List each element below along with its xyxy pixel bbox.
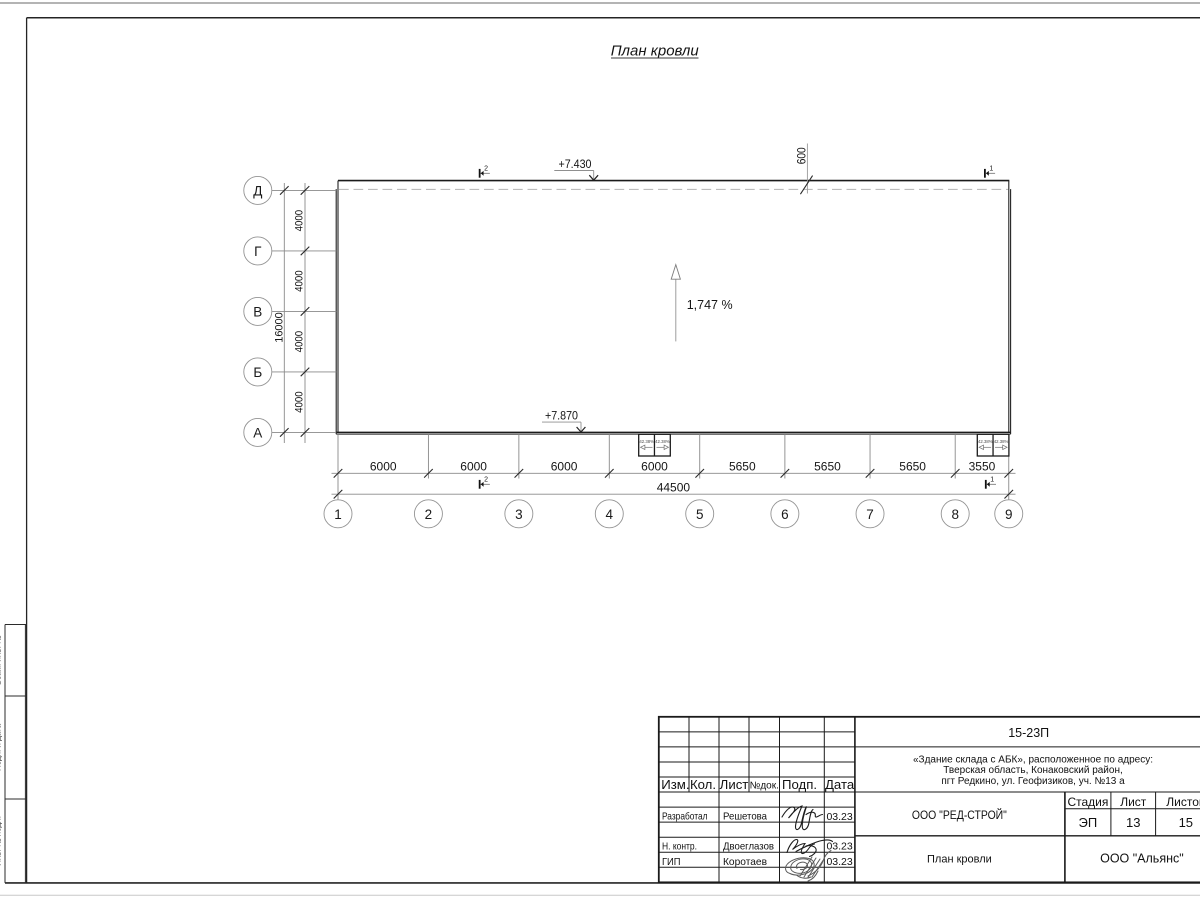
svg-text:5650: 5650 — [814, 459, 841, 473]
svg-text:Двоеглазов: Двоеглазов — [723, 841, 774, 853]
svg-text:15-23П: 15-23П — [1008, 726, 1049, 740]
svg-text:6000: 6000 — [641, 459, 668, 473]
svg-text:8: 8 — [951, 507, 959, 522]
svg-text:600: 600 — [797, 147, 809, 164]
svg-text:Решетова: Решетова — [723, 810, 767, 822]
svg-text:ЭП: ЭП — [1079, 815, 1098, 830]
svg-text:Лист: Лист — [720, 777, 749, 792]
svg-text:ООО "Альянс": ООО "Альянс" — [1100, 851, 1184, 865]
svg-text:4000: 4000 — [294, 391, 306, 413]
svg-text:4000: 4000 — [294, 331, 306, 353]
svg-text:Кол.: Кол. — [690, 777, 716, 792]
svg-text:Б: Б — [253, 365, 262, 380]
svg-text:42.38%: 42.38% — [639, 439, 654, 444]
svg-text:13: 13 — [1126, 815, 1140, 830]
svg-text:Листов: Листов — [1166, 795, 1200, 809]
svg-text:6: 6 — [781, 507, 789, 522]
svg-text:15: 15 — [1179, 815, 1193, 830]
svg-text:5650: 5650 — [899, 459, 926, 473]
svg-text:4000: 4000 — [294, 210, 306, 232]
svg-text:ГИП: ГИП — [662, 856, 681, 868]
svg-text:Н. контр.: Н. контр. — [662, 841, 697, 853]
svg-text:№док.: №док. — [750, 780, 779, 791]
svg-text:9: 9 — [1005, 507, 1013, 522]
svg-text:3550: 3550 — [969, 459, 996, 473]
svg-text:6000: 6000 — [551, 459, 578, 473]
svg-text:1: 1 — [990, 477, 994, 484]
svg-text:Лист: Лист — [1120, 795, 1147, 809]
svg-text:1,747 %: 1,747 % — [687, 298, 733, 312]
svg-text:Дата: Дата — [825, 777, 855, 792]
svg-text:5650: 5650 — [729, 459, 756, 473]
svg-text:Д: Д — [253, 183, 262, 198]
svg-text:План кровли: План кровли — [927, 854, 992, 866]
svg-text:03.23: 03.23 — [826, 856, 852, 868]
svg-text:Подп.: Подп. — [782, 777, 817, 792]
svg-text:3: 3 — [515, 507, 523, 522]
svg-text:Инв. № подл.: Инв. № подл. — [0, 816, 3, 866]
svg-text:1: 1 — [334, 507, 342, 522]
svg-text:Тверская область, Конаковский: Тверская область, Конаковский район, — [943, 764, 1123, 776]
svg-text:6000: 6000 — [370, 459, 397, 473]
svg-text:Г: Г — [254, 244, 262, 259]
svg-text:42.38%: 42.38% — [994, 439, 1009, 444]
svg-text:6000: 6000 — [460, 459, 487, 473]
svg-text:Изм.: Изм. — [661, 777, 689, 792]
svg-text:2: 2 — [484, 477, 488, 484]
svg-text:4: 4 — [606, 507, 614, 522]
svg-text:2: 2 — [425, 507, 433, 522]
svg-text:4000: 4000 — [294, 270, 306, 292]
svg-text:+7.430: +7.430 — [559, 157, 592, 171]
svg-text:пгт Редкино, ул. Геофизиков, у: пгт Редкино, ул. Геофизиков, уч. №13 а — [941, 775, 1125, 787]
svg-text:ООО "РЕД-СТРОЙ": ООО "РЕД-СТРОЙ" — [912, 809, 1007, 822]
svg-text:Подп. и дата: Подп. и дата — [0, 723, 3, 771]
svg-text:План кровли: План кровли — [611, 43, 700, 60]
svg-text:5: 5 — [696, 507, 704, 522]
svg-text:Взам. инв. №: Взам. инв. № — [0, 635, 3, 685]
svg-text:2: 2 — [484, 166, 488, 173]
svg-text:7: 7 — [866, 507, 874, 522]
svg-text:44500: 44500 — [657, 480, 691, 494]
svg-text:Разработал: Разработал — [662, 810, 708, 822]
svg-text:Стадия: Стадия — [1067, 795, 1108, 809]
svg-text:Коротаев: Коротаев — [723, 856, 767, 868]
svg-text:«Здание склада с АБК», располо: «Здание склада с АБК», расположенное по … — [913, 754, 1153, 765]
svg-text:03.23: 03.23 — [826, 811, 852, 823]
svg-text:1: 1 — [989, 166, 993, 173]
svg-text:В: В — [253, 304, 262, 319]
svg-text:16000: 16000 — [274, 312, 286, 343]
svg-text:42.38%: 42.38% — [978, 439, 993, 444]
svg-text:А: А — [253, 425, 262, 440]
svg-text:42.38%: 42.38% — [655, 439, 670, 444]
svg-text:+7.870: +7.870 — [545, 409, 578, 423]
